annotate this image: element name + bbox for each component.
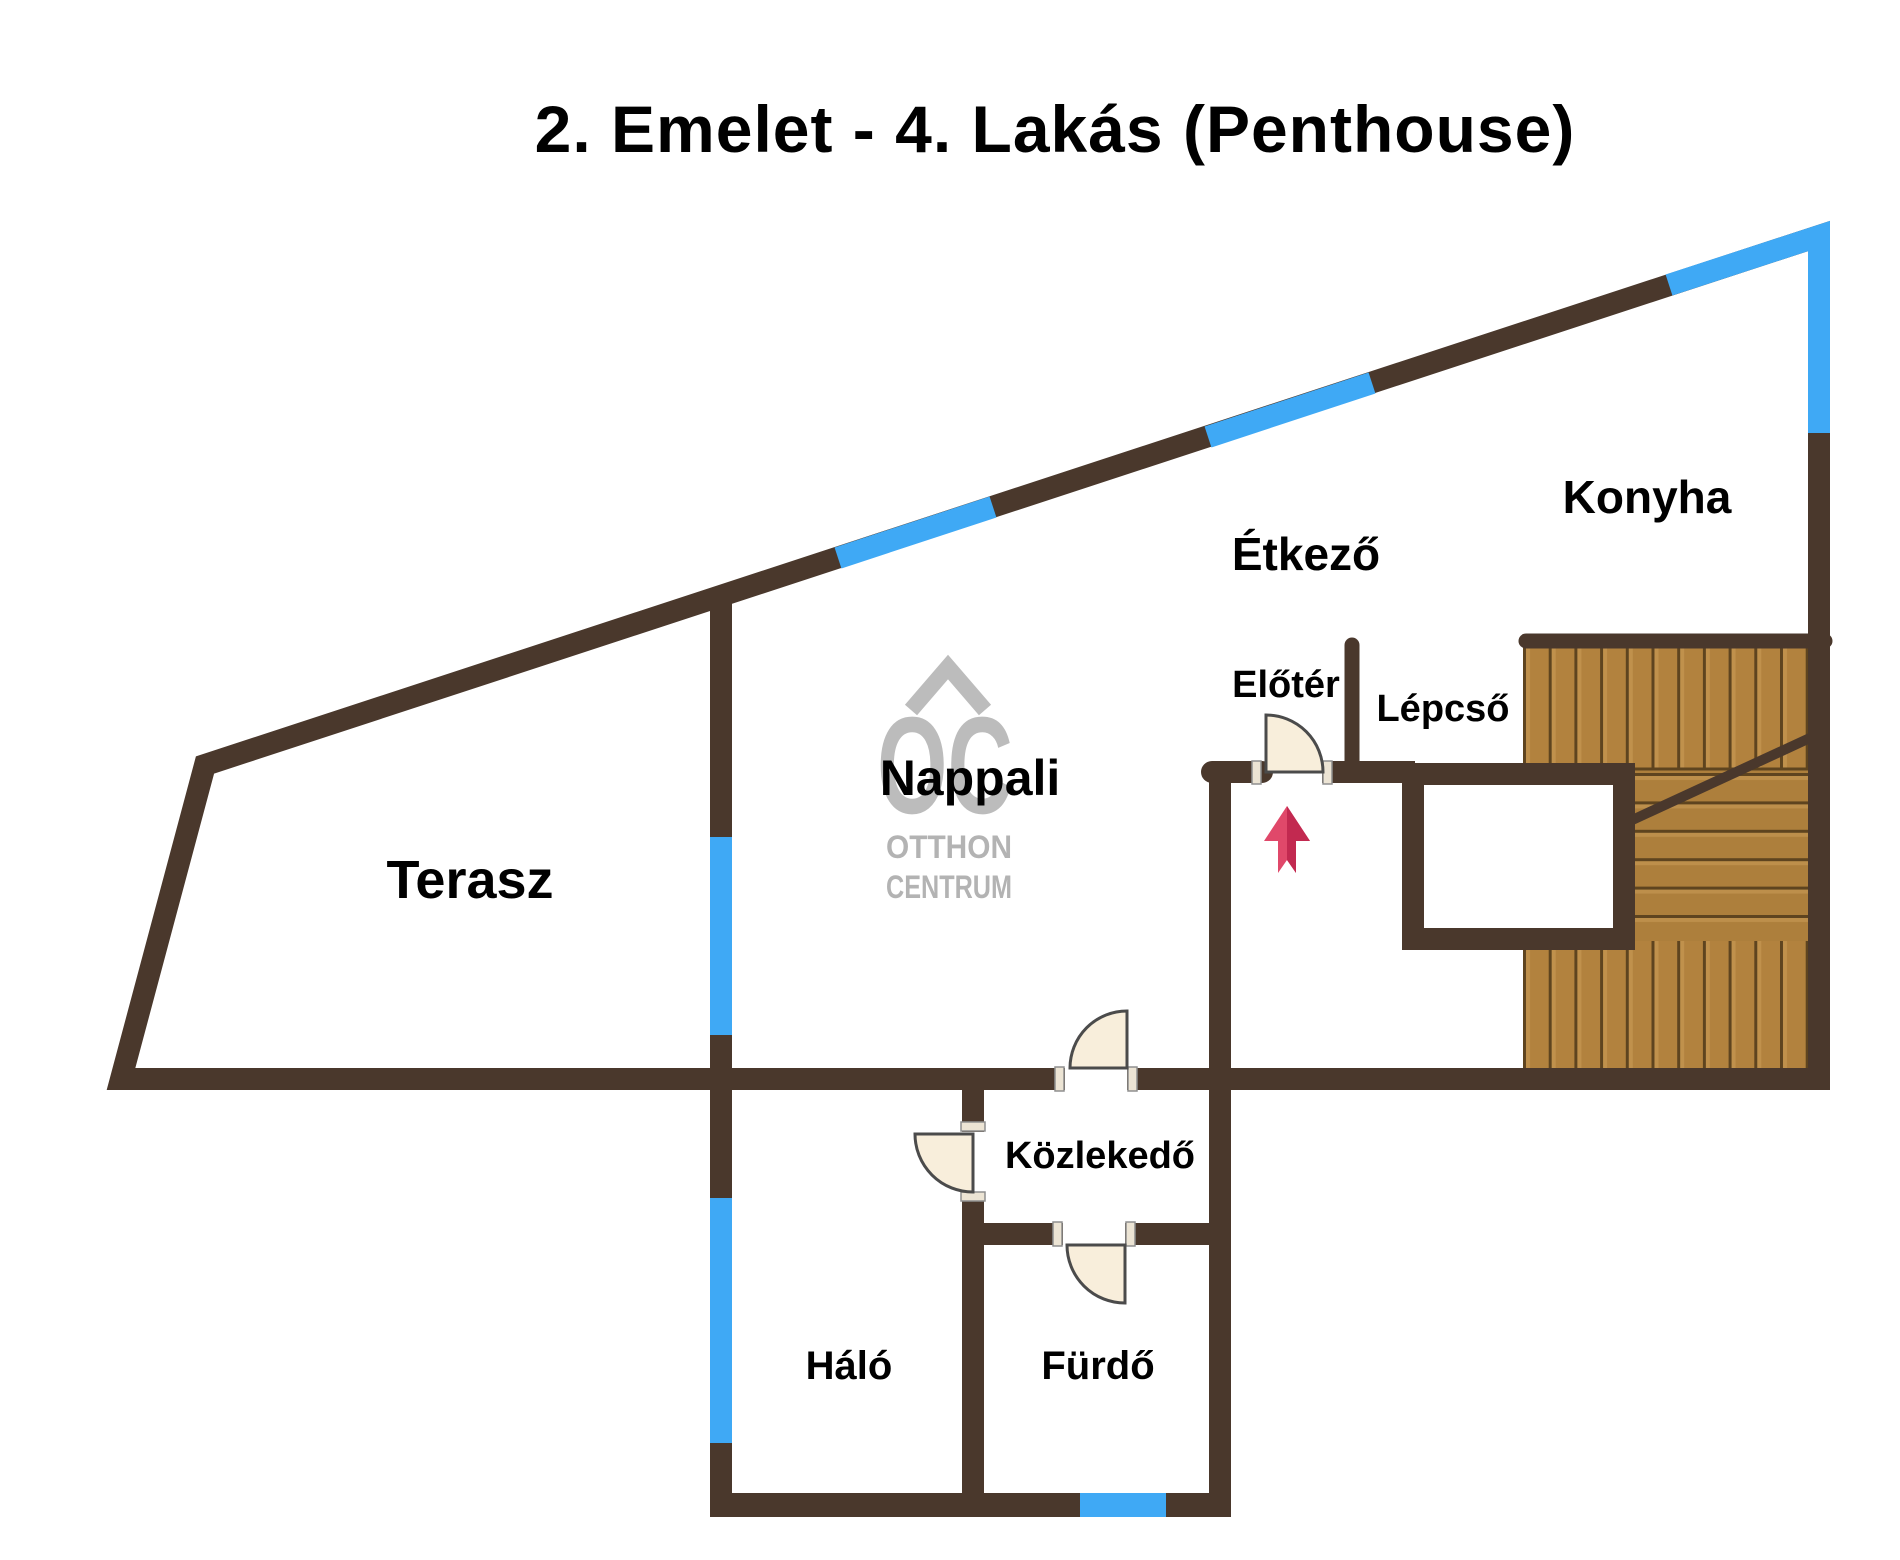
stair-void xyxy=(1413,774,1624,939)
room-label-etkezo: Étkező xyxy=(1232,528,1380,580)
furdo-door-jamb-right xyxy=(1126,1222,1135,1246)
window-diagonal-1 xyxy=(838,507,993,558)
entry-door-swing-icon xyxy=(1266,715,1323,772)
entry-arrow-shade xyxy=(1287,806,1310,873)
window-top-right-corner xyxy=(1669,236,1819,433)
room-label-furdo: Fürdő xyxy=(1041,1344,1154,1388)
watermark-line2: CENTRUM xyxy=(886,869,1012,905)
entry-arrow-icon xyxy=(1264,806,1310,873)
nappali-door-swing-icon xyxy=(1070,1011,1127,1068)
room-label-eloter: Előtér xyxy=(1232,664,1340,706)
stair-middle-flight xyxy=(1635,769,1808,941)
watermark-line1: OTTHON xyxy=(886,829,1012,865)
floor-plan: OC OTTHON CENTRUM xyxy=(0,0,1900,1560)
nappali-door-jamb-right xyxy=(1128,1067,1137,1091)
room-label-halo: Háló xyxy=(806,1344,893,1388)
room-label-kozlekedo: Közlekedő xyxy=(1005,1135,1195,1177)
room-label-terasz: Terasz xyxy=(386,850,553,910)
room-label-nappali: Nappali xyxy=(880,750,1061,806)
room-label-konyha: Konyha xyxy=(1563,471,1732,523)
window-diagonal-2 xyxy=(1208,383,1372,437)
furdo-door-swing-icon xyxy=(1067,1245,1125,1303)
stair-lower-flight xyxy=(1523,941,1808,1070)
furdo-door-jamb-left xyxy=(1053,1222,1062,1246)
nappali-door-jamb-left xyxy=(1055,1067,1064,1091)
entry-door-jamb-left xyxy=(1252,761,1261,784)
stair-upper-flight xyxy=(1523,647,1808,769)
room-label-lepcso: Lépcső xyxy=(1376,688,1509,730)
halo-door-swing-icon xyxy=(915,1134,973,1192)
floor-plan-page: OC OTTHON CENTRUM xyxy=(0,0,1900,1560)
halo-door-jamb-top xyxy=(961,1122,985,1131)
page-title: 2. Emelet - 4. Lakás (Penthouse) xyxy=(535,92,1576,166)
bottom-wall-door-gap xyxy=(1065,1066,1127,1092)
